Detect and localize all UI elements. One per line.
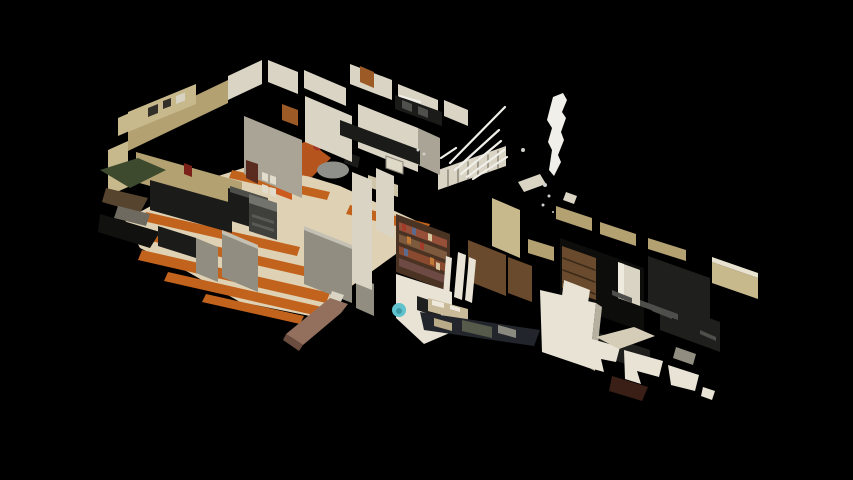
viewer-canvas[interactable]: [0, 0, 853, 480]
leaning-planks: [443, 252, 476, 303]
round-table: [317, 162, 349, 179]
teal-object-core: [396, 308, 402, 314]
office-dollhouse-render[interactable]: [0, 0, 853, 480]
